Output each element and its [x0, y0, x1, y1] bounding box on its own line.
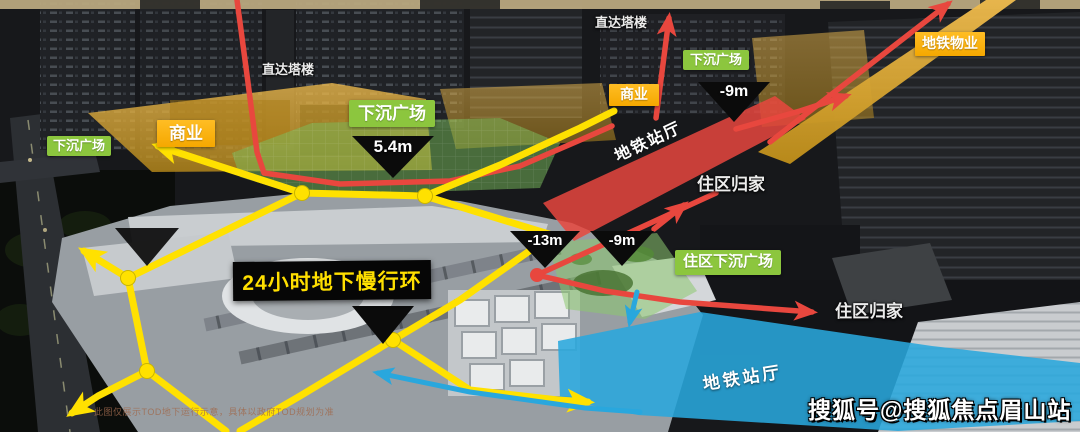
label-metro-property: 地铁物业	[915, 32, 985, 56]
label-direct-tower-top: 直达塔楼	[595, 15, 647, 31]
shadow-triangle	[115, 228, 179, 269]
elevation-marker-upper-minus9: -9m	[698, 82, 770, 125]
sohu-watermark: 搜狐号@搜狐焦点眉山站	[808, 391, 1071, 425]
label-residential-home-upper: 住区归家	[697, 174, 765, 195]
elevation-marker-mid-minus9: -9m	[590, 231, 654, 269]
disclaimer-caption: 此图仅展示TOD地下运行示意，具体以政府TOD规划为准	[94, 405, 334, 418]
label-sunken-plaza-top: 下沉广场	[683, 50, 749, 70]
elevation-marker-plaza-depth: 5.4m	[352, 136, 434, 181]
elevation-value: -9m	[720, 83, 748, 101]
label-residential-sunken-plaza: 住区下沉广场	[675, 250, 781, 275]
label-sunken-plaza-center: 下沉广场	[349, 100, 435, 127]
label-commercial-center: 商业	[609, 84, 659, 106]
label-commercial-left: 商业	[157, 120, 215, 147]
banner-24h-underground-loop: 24小时地下慢行环	[233, 260, 431, 301]
tod-aerial-diagram: 直达塔楼 直达塔楼 住区归家 住区归家 下沉广场 下沉广场 下沉广场 住区下沉广…	[0, 0, 1080, 432]
label-direct-tower-left: 直达塔楼	[262, 62, 314, 78]
label-residential-home-lower: 住区归家	[835, 301, 903, 322]
label-sunken-plaza-left: 下沉广场	[47, 136, 111, 156]
elevation-value: -9m	[609, 232, 636, 249]
scene-svg	[0, 0, 1080, 432]
elevation-value: 5.4m	[374, 137, 413, 157]
pointer-triangle	[352, 306, 414, 347]
elevation-value: -13m	[527, 232, 562, 249]
elevation-marker-minus13: -13m	[510, 231, 580, 271]
